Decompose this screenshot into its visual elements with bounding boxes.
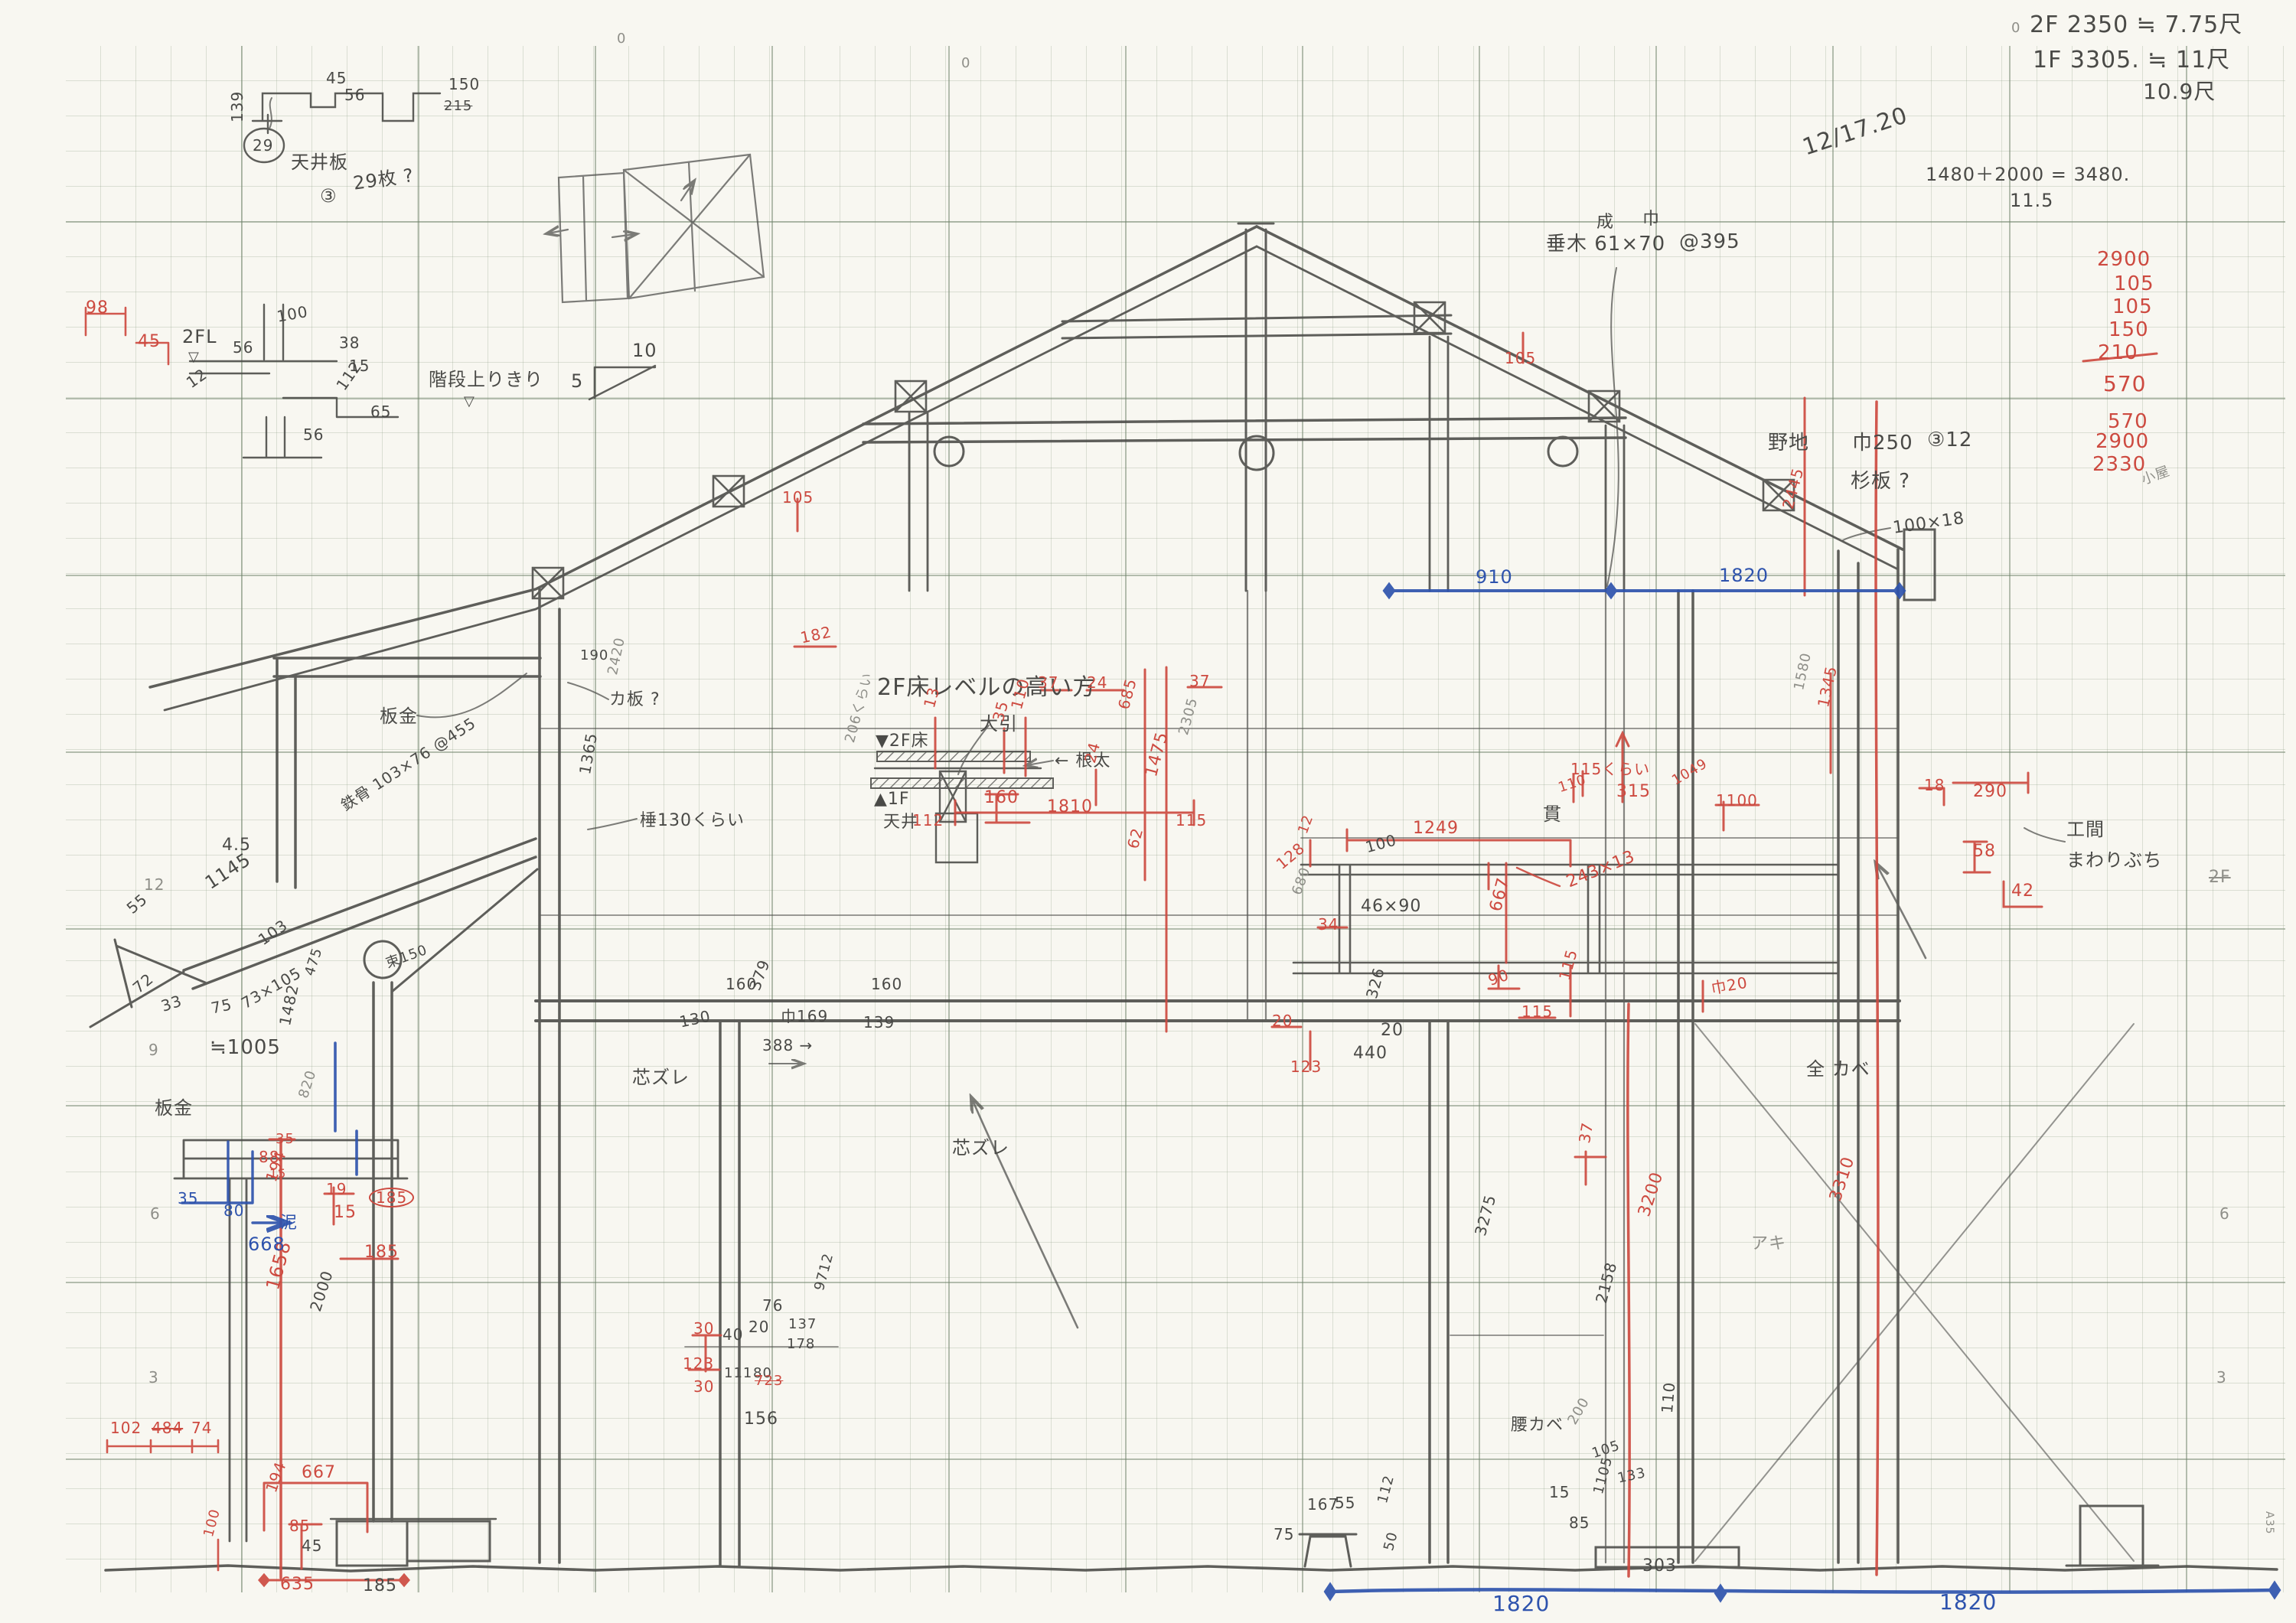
annotation-blue-dim: 35 bbox=[178, 1191, 198, 1206]
annotation-red-dim: 3310 bbox=[1828, 1155, 1857, 1204]
annotation-ceiling-note: 29 bbox=[253, 138, 273, 153]
annotation-red-dim: 105 bbox=[782, 490, 814, 505]
annotation-ceiling-note: 29枚 ? bbox=[352, 166, 415, 193]
annotation-red-dim: 667 bbox=[1488, 876, 1513, 914]
annotation-porch-dim: 4.5 bbox=[222, 837, 251, 854]
annotation-floor-detail: ▼2F床 bbox=[876, 733, 929, 750]
annotation-eave-label: 鉄骨 103×76 @455 bbox=[338, 715, 478, 813]
graph-paper-sheet: 2F 2350 ≒ 7.75尺1F 3305. ≒ 11尺10.9尺12/17.… bbox=[0, 0, 2296, 1623]
annotation-eave-label: 棰130くらい bbox=[640, 813, 745, 829]
annotation-red-dim: 37 bbox=[1577, 1121, 1595, 1145]
annotation-2fl-detail: ▽ bbox=[188, 350, 200, 364]
annotation-red-dim: 62 bbox=[1125, 826, 1145, 850]
annotation-blue-dim: 80 bbox=[223, 1203, 244, 1218]
annotation-center-dim: 156 bbox=[744, 1411, 778, 1428]
annotation-sheathing-note: 巾250 bbox=[1852, 433, 1913, 453]
annotation-eave-dim: 1365 bbox=[577, 732, 599, 776]
annotation-red-calc-column: 105 bbox=[2112, 297, 2153, 317]
annotation-right-dim: 1580 bbox=[1792, 651, 1814, 691]
annotation-footing-dim: 15 bbox=[1549, 1484, 1570, 1500]
annotation-red-dim: 37 bbox=[1189, 673, 1210, 689]
annotation-red-dim: 24 bbox=[1087, 675, 1107, 690]
annotation-stair-note: ▽ bbox=[464, 395, 475, 409]
annotation-footing-dim: 133 bbox=[1616, 1466, 1647, 1485]
annotation-sheathing-note: 野地 bbox=[1768, 433, 1809, 453]
annotation-red-dim: 1810 bbox=[1047, 799, 1093, 816]
annotation-red-dim: 290 bbox=[1973, 784, 2007, 800]
annotation-red-dim: 37 bbox=[1038, 675, 1058, 690]
annotation-red-dim: 1100 bbox=[1716, 793, 1758, 808]
annotation-grid-row-label: 6 bbox=[2219, 1206, 2230, 1221]
annotation-2fl-detail-dim: 65 bbox=[370, 404, 391, 419]
annotation-grid-mark: 0 bbox=[617, 32, 626, 46]
annotation-ceiling-detail-dim: 139 bbox=[230, 91, 245, 122]
annotation-red-dim: 24 bbox=[1082, 740, 1102, 764]
annotation-red-dim: 160 bbox=[984, 790, 1019, 807]
annotation-red-dim: 115 bbox=[1176, 813, 1207, 828]
annotation-red-dim: 15 bbox=[334, 1204, 357, 1221]
annotation-blue-dim: 668 bbox=[248, 1235, 285, 1253]
annotation-footing-dim: 185 bbox=[363, 1578, 397, 1595]
annotation-date-note: 12/17.20 bbox=[1800, 104, 1910, 159]
annotation-blue-dim: 1820 bbox=[1719, 566, 1769, 585]
annotation-porch-dim: 55 bbox=[124, 891, 150, 916]
annotation-story-height-note: 1F 3305. ≒ 11尺 bbox=[2033, 49, 2230, 72]
annotation-grid-row-label: 9 bbox=[148, 1042, 159, 1058]
annotation-blue-dim: 泥 bbox=[280, 1215, 298, 1232]
annotation-red-calc-column: 105 bbox=[2114, 274, 2154, 294]
annotation-red-calc-column: 2330 bbox=[2092, 455, 2146, 474]
annotation-member-label: 貫 bbox=[1543, 805, 1562, 823]
annotation-floor-dim: 160 bbox=[871, 976, 902, 992]
annotation-grid-mark: 0 bbox=[2011, 21, 2020, 35]
annotation-sheathing-note: 100×18 bbox=[1892, 510, 1966, 537]
annotation-floor-detail: ▲1F bbox=[874, 791, 910, 808]
annotation-red-dim: 102 bbox=[110, 1420, 142, 1436]
annotation-red-dim: 115 bbox=[1521, 1004, 1553, 1019]
annotation-red-dim: 20 bbox=[1272, 1013, 1293, 1028]
annotation-blue-dim: 910 bbox=[1476, 568, 1513, 586]
annotation-red-dim: 243×13 bbox=[1564, 849, 1638, 891]
annotation-rafter-note: 垂木 61×70 bbox=[1546, 234, 1665, 254]
annotation-eave-dim: 2420 bbox=[606, 636, 628, 676]
annotation-footing-dim: 303 bbox=[1642, 1558, 1677, 1575]
annotation-red-dim: 74 bbox=[191, 1420, 212, 1436]
annotation-red-dim: 685 bbox=[1116, 676, 1139, 711]
annotation-porch-dim: 1145 bbox=[202, 850, 254, 893]
annotation-2fl-detail-dim: 112 bbox=[334, 358, 364, 393]
annotation-wall-label: 腰カベ bbox=[1511, 1417, 1564, 1434]
annotation-red-dim: 90 bbox=[1486, 967, 1511, 989]
annotation-porch-dim: 72 bbox=[130, 970, 156, 996]
annotation-porch-dim: 475 bbox=[303, 946, 325, 977]
annotation-red-dim: 315 bbox=[1616, 784, 1651, 800]
annotation-red-dim: 635 bbox=[280, 1576, 315, 1593]
annotation-paper-edge: A35 bbox=[2264, 1511, 2275, 1534]
annotation-eave-label: 板金 bbox=[380, 707, 418, 725]
annotation-red-dim: 3200 bbox=[1636, 1170, 1666, 1219]
annotation-red-dim: 110 bbox=[1557, 773, 1588, 795]
annotation-center-dim: 76 bbox=[762, 1298, 783, 1313]
annotation-floor-detail: 2F床レベルの高い方 bbox=[877, 676, 1096, 699]
annotation-red-dim: 35 bbox=[276, 1133, 295, 1146]
annotation-wall-label: 200 bbox=[1566, 1396, 1592, 1427]
annotation-footing-dim: 45 bbox=[302, 1538, 322, 1553]
annotation-story-height-note: 10.9尺 bbox=[2143, 81, 2216, 103]
annotation-footing-dim: 167 bbox=[1307, 1497, 1339, 1512]
annotation-porch-dim: ≒1005 bbox=[210, 1038, 281, 1058]
annotation-red-calc-column: 570 bbox=[2108, 412, 2148, 432]
annotation-red-dim: 30 bbox=[693, 1379, 714, 1394]
annotation-2fl-detail: 2FL bbox=[182, 328, 217, 346]
annotation-2fl-detail-dim: 56 bbox=[303, 427, 324, 442]
annotation-red-dim: 185 bbox=[364, 1244, 399, 1261]
annotation-ceiling-note: 天井板 bbox=[291, 153, 348, 171]
annotation-red-dim: 42 bbox=[2011, 883, 2034, 900]
annotation-floor-dim: 388 → bbox=[762, 1038, 813, 1053]
annotation-porch-dim: 820 bbox=[297, 1068, 319, 1100]
annotation-calc-note: 11.5 bbox=[2010, 191, 2053, 210]
annotation-floor-dim: 139 bbox=[863, 1015, 895, 1030]
annotation-grid-row-label: 12 bbox=[144, 877, 165, 892]
annotation-floor-dim: 巾169 bbox=[781, 1009, 828, 1024]
annotation-wall-label: 全 カベ bbox=[1806, 1060, 1870, 1078]
annotation-porch-label: 束150 bbox=[384, 943, 429, 971]
annotation-ceiling-detail-dim: 215 bbox=[444, 99, 472, 113]
annotation-2fl-detail-dim: 100 bbox=[276, 304, 309, 324]
annotation-2fl-detail-dim: 12 bbox=[184, 366, 210, 390]
annotation-rafter-note: 巾 bbox=[1642, 211, 1660, 228]
annotation-red-dim: 185 bbox=[369, 1188, 414, 1207]
annotation-gap-note: アキ bbox=[1751, 1236, 1786, 1253]
annotation-rafter-note: 成 bbox=[1596, 214, 1614, 231]
annotation-center-dim: 40 bbox=[722, 1327, 743, 1342]
annotation-blue-dim: 1820 bbox=[1939, 1592, 1997, 1613]
annotation-dim: 20 bbox=[1381, 1022, 1404, 1039]
annotation-floor-detail: 2305 bbox=[1177, 696, 1200, 737]
annotation-eave-label: カ板 ? bbox=[609, 692, 660, 709]
annotation-roof-slope: 5 bbox=[571, 372, 583, 390]
annotation-stair-note: 階段上りきり bbox=[429, 370, 543, 389]
annotation-grid-row-label: 3 bbox=[148, 1370, 159, 1385]
annotation-footing-dim: 75 bbox=[1274, 1527, 1294, 1542]
annotation-red-dim: 45 bbox=[138, 334, 161, 350]
annotation-porch-dim: 103 bbox=[256, 917, 290, 947]
annotation-blue-dim: 1820 bbox=[1492, 1593, 1550, 1615]
annotation-center-dim: 111 bbox=[724, 1367, 752, 1380]
annotation-eave-dim: 190 bbox=[580, 649, 608, 663]
annotation-calc-note: 1480＋2000 = 3480. bbox=[1926, 165, 2130, 184]
annotation-red-calc-column: 150 bbox=[2108, 320, 2149, 340]
annotation-floor-dim: 379 bbox=[747, 957, 772, 992]
annotation-rafter-note: @395 bbox=[1679, 232, 1740, 252]
annotation-grid-row-label: 6 bbox=[150, 1206, 161, 1221]
annotation-right-dim: 3275 bbox=[1473, 1193, 1499, 1237]
annotation-center-dim: 9712 bbox=[813, 1252, 836, 1292]
annotation-red-dim: 123 bbox=[683, 1356, 714, 1371]
annotation-ceiling-detail-dim: 150 bbox=[448, 77, 480, 92]
annotation-grid-row-label: 3 bbox=[2216, 1370, 2227, 1385]
annotation-red-dim: 182 bbox=[799, 624, 833, 645]
annotation-red-calc-column: 210 bbox=[2098, 343, 2138, 363]
annotation-porch-dim: 2000 bbox=[308, 1269, 335, 1313]
annotation-red-dim: 194 bbox=[263, 1459, 289, 1494]
annotation-red-dim: 34 bbox=[1318, 917, 1339, 932]
annotation-offset-note: 芯ズレ bbox=[632, 1068, 690, 1087]
annotation-porch-dim: 33 bbox=[159, 993, 184, 1015]
annotation-floor-detail: 206くらい bbox=[843, 671, 876, 745]
annotation-member-size: 46×90 bbox=[1361, 898, 1421, 915]
annotation-red-dim: 13 bbox=[921, 685, 941, 709]
annotation-dim: 326 bbox=[1364, 966, 1387, 1000]
annotation-ceiling-detail-dim: 56 bbox=[344, 87, 365, 103]
annotation-center-dim: 137 bbox=[788, 1318, 817, 1331]
annotation-center-dim: 178 bbox=[787, 1338, 815, 1351]
annotation-red-dim: 1249 bbox=[1413, 820, 1459, 837]
annotation-red-dim: 1475 bbox=[1143, 730, 1172, 779]
annotation-dim: 440 bbox=[1353, 1045, 1388, 1062]
annotation-footing-dim: 112 bbox=[1376, 1474, 1397, 1505]
annotation-red-dim: 58 bbox=[1973, 843, 1996, 860]
annotation-roof-slope: 10 bbox=[632, 341, 657, 360]
annotation-grid-row-label: 2F bbox=[2209, 869, 2231, 886]
annotation-red-calc-column: 2900 bbox=[2097, 249, 2151, 269]
annotation-floor-dim: 130 bbox=[678, 1008, 712, 1029]
annotation-red-dim: 1049 bbox=[1670, 757, 1710, 787]
annotation-right-dim: 2158 bbox=[1593, 1260, 1619, 1305]
annotation-footing-dim: 85 bbox=[1569, 1515, 1590, 1530]
annotation-porch-label: 板金 bbox=[155, 1099, 193, 1117]
annotation-red-dim: 105 bbox=[1505, 350, 1536, 366]
annotation-porch-dim: 75 bbox=[210, 996, 233, 1015]
annotation-trim-note: 工間 bbox=[2066, 820, 2105, 839]
annotation-red-dim: 123 bbox=[1290, 1059, 1322, 1074]
annotation-red-dim: 85 bbox=[289, 1518, 310, 1533]
annotation-offset-note: 芯ズレ bbox=[952, 1139, 1009, 1157]
annotation-red-dim: 30 bbox=[693, 1321, 714, 1336]
annotation-red-dim: 98 bbox=[86, 300, 109, 317]
annotation-red-calc-column: 570 bbox=[2103, 373, 2146, 395]
annotation-red-dim: 19 bbox=[326, 1181, 347, 1197]
annotation-red-dim: 巾20 bbox=[1710, 975, 1749, 996]
annotation-red-dim: 18 bbox=[1924, 777, 1945, 793]
annotation-right-dim: 110 bbox=[1659, 1381, 1678, 1414]
annotation-red-calc-column: 2900 bbox=[2095, 432, 2149, 451]
annotation-red-dim: 2445 bbox=[1780, 466, 1806, 510]
annotation-red-dim: 12 bbox=[1296, 813, 1316, 836]
annotation-story-height-note: 2F 2350 ≒ 7.75尺 bbox=[2030, 14, 2242, 37]
annotation-red-dim: 723 bbox=[755, 1374, 783, 1388]
annotation-sheathing-note: 杉板 ? bbox=[1851, 471, 1910, 491]
annotation-red-dim: 667 bbox=[302, 1465, 336, 1481]
annotation-grid-mark: 0 bbox=[961, 57, 970, 70]
annotation-trim-note: まわりぶち bbox=[2066, 851, 2162, 869]
annotation-member-size: 100 bbox=[1364, 832, 1398, 855]
annotation-red-dim: 1345 bbox=[1815, 664, 1839, 709]
annotation-ceiling-note: ③ bbox=[320, 187, 338, 205]
annotation-footing-dim: 55 bbox=[1335, 1495, 1355, 1511]
annotation-center-dim: 20 bbox=[748, 1319, 769, 1335]
handwritten-annotations-layer: 2F 2350 ≒ 7.75尺1F 3305. ≒ 11尺10.9尺12/17.… bbox=[0, 0, 2296, 1623]
annotation-red-dim: 100 bbox=[202, 1507, 223, 1539]
annotation-2fl-detail-dim: 56 bbox=[233, 340, 253, 355]
annotation-red-dim: 115 bbox=[1557, 947, 1580, 982]
annotation-red-dim: 112 bbox=[912, 813, 944, 828]
annotation-footing-dim: 50 bbox=[1382, 1530, 1401, 1553]
annotation-2fl-detail-dim: 38 bbox=[339, 335, 360, 350]
annotation-sheathing-note: ③12 bbox=[1927, 430, 1972, 450]
annotation-window-dim: 680 bbox=[1290, 865, 1313, 897]
annotation-ceiling-detail-dim: 45 bbox=[326, 70, 347, 86]
annotation-red-dim: 484 bbox=[152, 1420, 183, 1436]
